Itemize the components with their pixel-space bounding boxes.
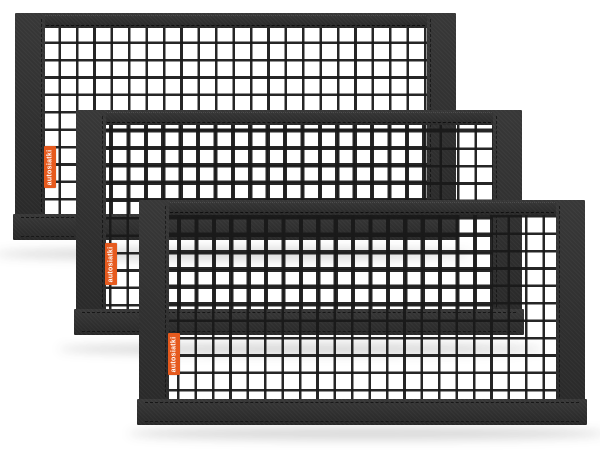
net-mesh [165,211,560,404]
net-frame-left [76,110,106,333]
brand-label-text: autosiatki [47,149,54,185]
brand-label-text: autosiatki [171,336,178,372]
product-photo: autosiatki autosiatki autosiatki [0,0,600,450]
net-frame-bottom [137,399,587,425]
brand-label: autosiatki [105,243,117,285]
brand-label-text: autosiatki [108,246,115,282]
net-front-shadow [128,427,600,440]
brand-label: autosiatki [168,333,180,375]
net-frame-left [139,200,169,423]
net-frame-right [556,200,585,423]
net-frame-left [15,13,45,238]
net-frame-top [16,13,455,28]
cargo-net-front: autosiatki [139,200,585,425]
net-frame-top [140,200,584,215]
brand-label: autosiatki [44,146,56,188]
net-frame-top [77,110,521,125]
